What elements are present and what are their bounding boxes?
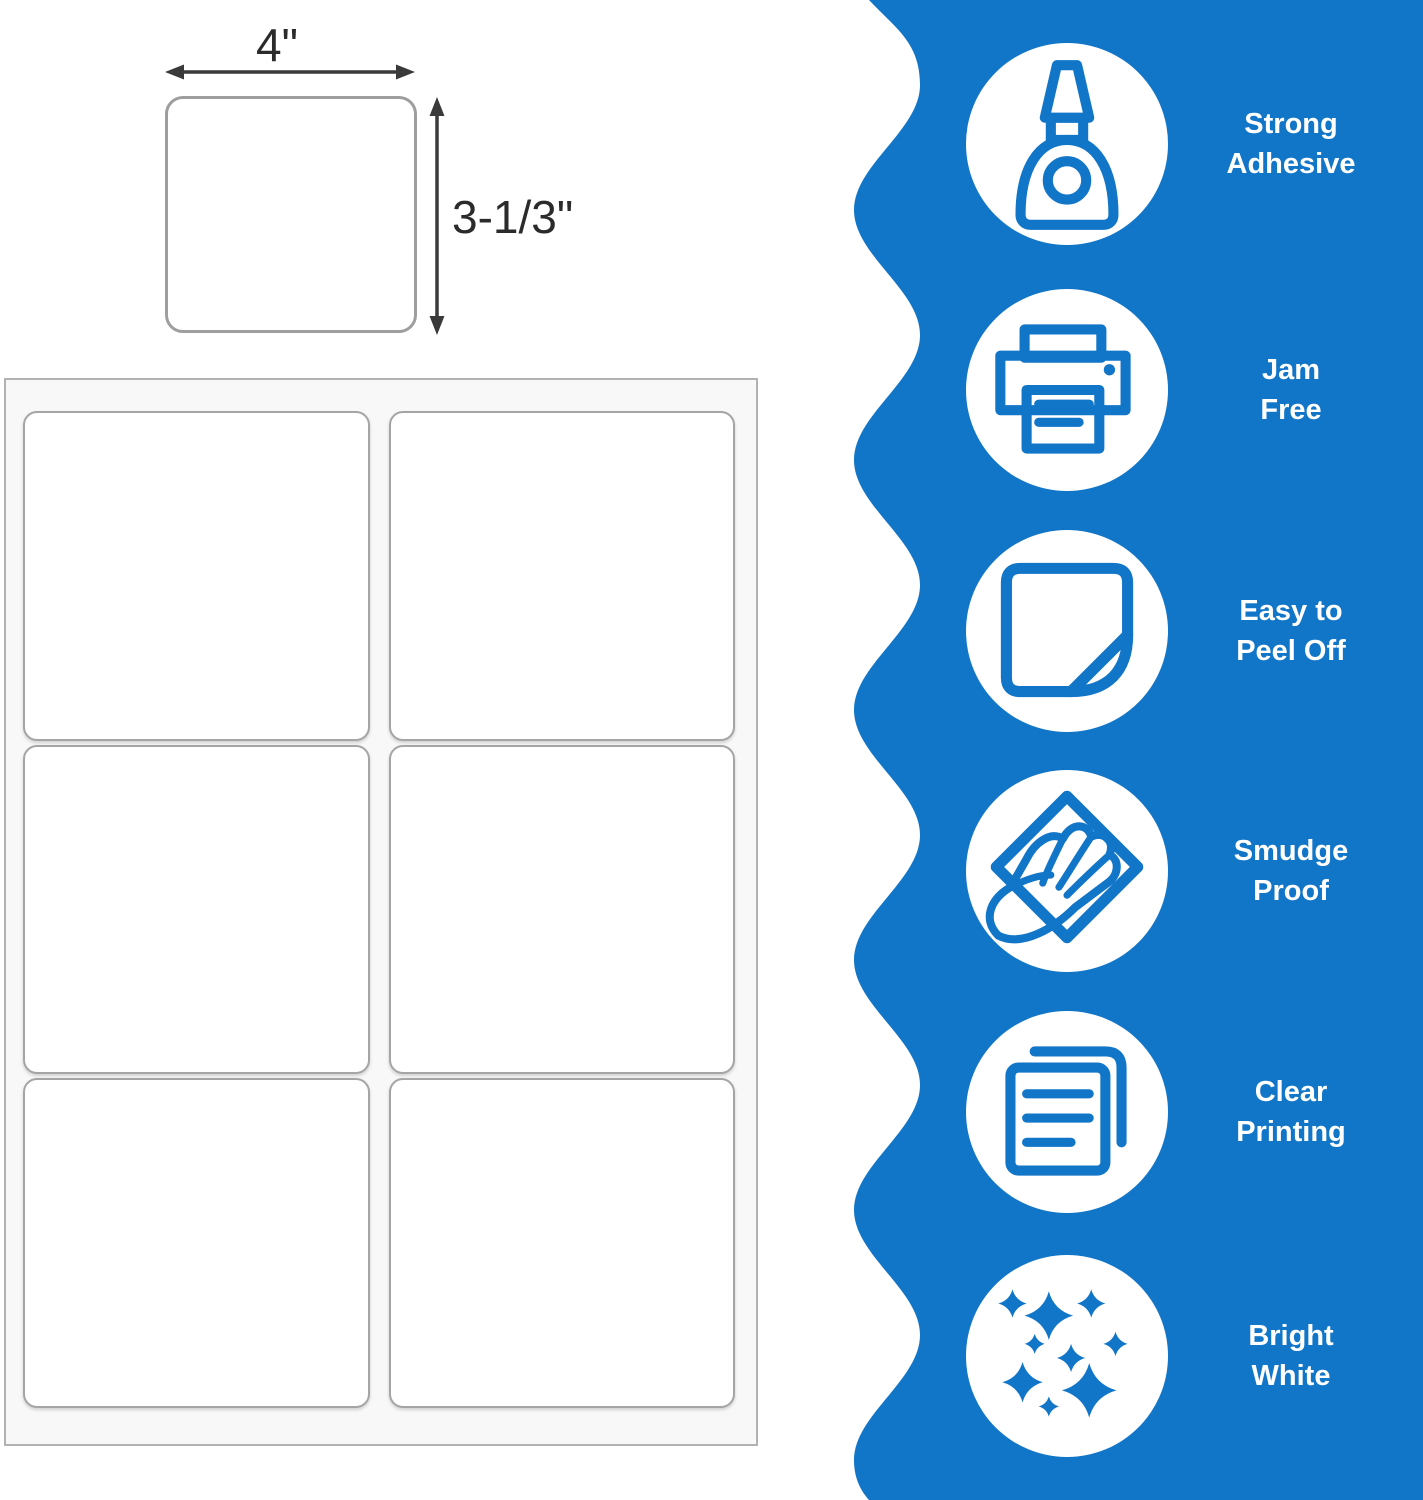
- feature-clear-printing: Clear Printing: [966, 1011, 1422, 1213]
- sheet-label: [389, 745, 736, 1075]
- sheet-label: [23, 745, 370, 1075]
- height-dimension-arrow: [426, 95, 448, 337]
- sticker-peel-icon: [966, 530, 1168, 732]
- feature-smudge-proof: Smudge Proof: [966, 770, 1422, 972]
- feature-strong-adhesive: Strong Adhesive: [966, 43, 1422, 245]
- printer-icon: [966, 289, 1168, 491]
- sheet-label: [23, 411, 370, 741]
- documents-icon: [966, 1011, 1168, 1213]
- label-preview: [165, 96, 417, 333]
- sparkles-icon: [966, 1255, 1168, 1457]
- feature-jam-free: Jam Free: [966, 289, 1422, 491]
- label-width-dimension: 4": [152, 18, 402, 72]
- feature-label: Easy to Peel Off: [1176, 591, 1406, 671]
- sheet-label: [389, 1078, 736, 1408]
- feature-label: Smudge Proof: [1176, 831, 1406, 911]
- feature-label: Bright White: [1176, 1316, 1406, 1396]
- label-height-dimension: 3-1/3": [452, 190, 573, 244]
- sheet-label: [23, 1078, 370, 1408]
- glue-bottle-icon: [966, 43, 1168, 245]
- product-infographic: 4" 3-1/3" Strong Adhesive: [0, 0, 1423, 1500]
- sheet-label: [389, 411, 736, 741]
- hand-smudge-icon: [966, 770, 1168, 972]
- feature-easy-peel: Easy to Peel Off: [966, 530, 1422, 732]
- feature-label: Jam Free: [1176, 350, 1406, 430]
- feature-label: Strong Adhesive: [1176, 104, 1406, 184]
- label-sheet: [4, 378, 758, 1446]
- feature-label: Clear Printing: [1176, 1072, 1406, 1152]
- feature-bright-white: Bright White: [966, 1255, 1422, 1457]
